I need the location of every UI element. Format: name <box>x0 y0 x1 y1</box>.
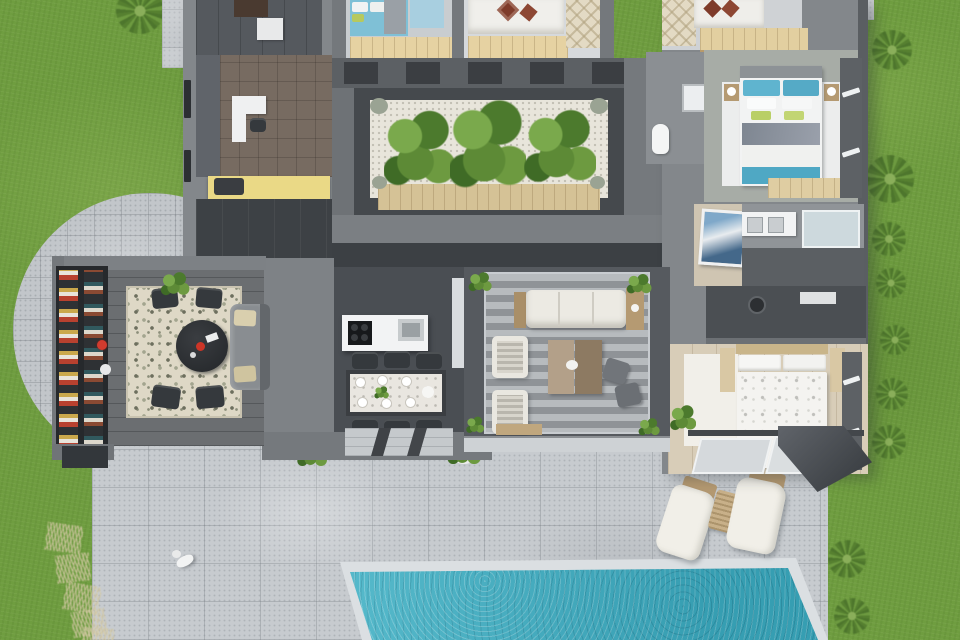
palm-shrub <box>828 540 866 578</box>
corner-plant <box>638 418 660 436</box>
gray-bush <box>372 176 387 189</box>
desk-chair <box>250 118 266 132</box>
bed-teal <box>740 66 822 186</box>
red-flower <box>97 340 107 350</box>
wall-mid-left <box>262 258 334 444</box>
window-bench <box>468 36 568 60</box>
plant <box>670 404 696 432</box>
glass-door <box>692 438 773 474</box>
coffee-table <box>548 340 602 394</box>
pool <box>336 556 832 640</box>
wardrobe <box>706 286 866 344</box>
study-floor-gray <box>196 55 220 177</box>
kitchen-island <box>342 315 428 351</box>
window-wall <box>840 58 862 198</box>
dining-table <box>346 370 446 416</box>
palm-shrub <box>880 325 910 355</box>
wall <box>332 0 346 58</box>
window <box>184 80 191 118</box>
cooktop <box>348 321 372 345</box>
artwork-leaning <box>698 208 748 267</box>
palm-shrub <box>872 222 906 256</box>
step-mat <box>345 428 453 456</box>
wall <box>452 0 464 58</box>
dresser <box>257 18 283 40</box>
study-desk <box>232 96 246 142</box>
armchair <box>492 336 528 378</box>
sofa-long <box>514 290 642 330</box>
palm-shrub <box>872 30 912 70</box>
library-chair <box>195 385 225 409</box>
bookshelf <box>56 266 108 452</box>
dry-grass-tuft <box>81 627 114 640</box>
palm-shrub <box>872 425 906 459</box>
white-sphere <box>100 364 111 375</box>
nightstand <box>720 348 735 392</box>
vanity <box>742 212 796 236</box>
window-bench <box>700 28 808 52</box>
nightstand <box>724 84 739 101</box>
wall <box>600 0 614 58</box>
dining-chair <box>384 351 410 368</box>
window-bench <box>350 37 452 60</box>
bed-white <box>468 0 564 34</box>
console-cabinet <box>234 0 268 17</box>
rug-blue <box>410 0 444 28</box>
wall-band-dark <box>332 243 670 267</box>
palm-shrub <box>876 268 906 298</box>
gray-bush <box>590 98 608 114</box>
courtyard-plants <box>450 94 526 196</box>
corridor-band <box>332 215 662 243</box>
palm-shrub <box>834 598 870 634</box>
bathroom-dark-strip <box>742 248 864 286</box>
checkered-rug <box>566 0 602 48</box>
library-chair <box>195 287 223 309</box>
dark-corner <box>62 446 108 468</box>
palm-shrub <box>866 155 914 203</box>
corner-plant <box>466 416 484 434</box>
dog <box>172 548 198 570</box>
checkered-rug <box>662 0 696 46</box>
corner-plant <box>626 274 652 294</box>
glass-shower <box>802 210 860 248</box>
oval-table <box>176 320 228 372</box>
nightstand <box>824 84 839 101</box>
corner-plant <box>468 272 492 292</box>
dry-grass-tuft <box>55 552 92 583</box>
plant <box>160 272 190 296</box>
courtyard-plants <box>384 106 454 192</box>
corridor <box>332 88 354 215</box>
bench-bag <box>214 178 244 195</box>
sink <box>398 319 424 341</box>
wood-plank <box>496 424 542 435</box>
dining-chair <box>416 352 442 369</box>
toilet <box>652 124 669 154</box>
hallway-tiles <box>344 62 650 84</box>
palm-shrub <box>876 378 908 410</box>
window <box>184 150 191 182</box>
sofa-gray <box>230 304 270 390</box>
gray-bush <box>590 176 605 189</box>
floor-plan-image <box>0 0 960 640</box>
dining-chair <box>352 352 378 369</box>
dry-grass-tuft <box>44 522 84 555</box>
bed-blue <box>350 0 408 36</box>
gray-bush <box>370 98 388 114</box>
living-threshold <box>464 436 670 452</box>
library-chair <box>151 384 182 410</box>
courtyard-plants <box>524 106 596 188</box>
